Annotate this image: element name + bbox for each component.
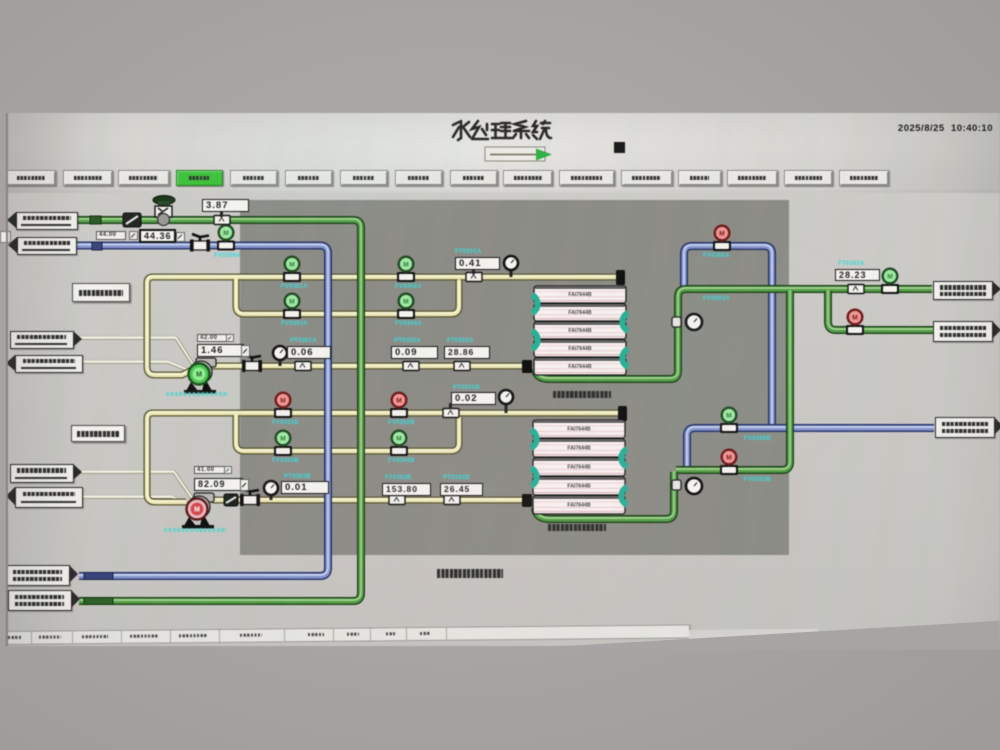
svg-text:M: M — [196, 372, 202, 379]
svg-text:M: M — [726, 412, 731, 419]
svg-text:M: M — [223, 230, 228, 237]
svg-text:M: M — [194, 507, 200, 514]
svg-text:M: M — [396, 397, 401, 404]
svg-text:M: M — [403, 298, 408, 305]
svg-text:M: M — [289, 261, 294, 268]
svg-text:M: M — [726, 454, 731, 461]
svg-text:M: M — [396, 435, 401, 442]
svg-text:M: M — [887, 273, 892, 280]
svg-text:FAI7644B: FAI7644B — [567, 465, 591, 471]
svg-text:M: M — [852, 314, 857, 321]
svg-text:FAI7644B: FAI7644B — [567, 446, 591, 452]
svg-text:FAI7644B: FAI7644B — [568, 364, 592, 370]
svg-text:M: M — [403, 261, 408, 268]
svg-text:M: M — [280, 435, 285, 442]
svg-text:M: M — [280, 397, 285, 404]
svg-text:M: M — [289, 298, 294, 305]
svg-text:FAI7644B: FAI7644B — [568, 292, 592, 298]
svg-text:FAI7644B: FAI7644B — [567, 503, 591, 509]
svg-text:FAI7644B: FAI7644B — [567, 427, 591, 433]
svg-text:FAI7644B: FAI7644B — [568, 310, 592, 316]
svg-text:FAI7644B: FAI7644B — [567, 484, 591, 490]
svg-text:M: M — [719, 230, 724, 237]
svg-text:FAI7644B: FAI7644B — [568, 346, 592, 352]
svg-text:FAI7644B: FAI7644B — [568, 328, 592, 334]
